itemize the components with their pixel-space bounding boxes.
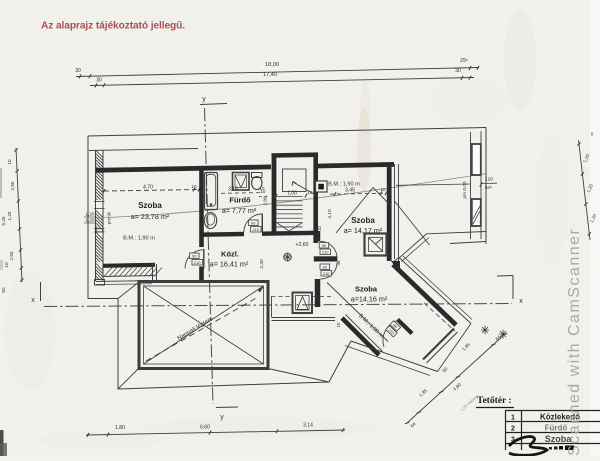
svg-text:Szoba: Szoba (138, 201, 162, 210)
svg-text:4,70: 4,70 (143, 185, 153, 191)
svg-text:10: 10 (261, 189, 266, 194)
svg-text:10: 10 (7, 159, 12, 165)
svg-text:pm 0,00: pm 0,00 (462, 181, 468, 199)
svg-text:210: 210 (322, 249, 329, 254)
svg-text:30: 30 (455, 68, 461, 74)
svg-text:30: 30 (75, 68, 81, 74)
svg-text:a= 16,41 m²: a= 16,41 m² (210, 260, 249, 269)
svg-text:10: 10 (4, 262, 9, 268)
svg-text:Szoba: Szoba (355, 285, 378, 294)
svg-text:1: 1 (511, 415, 515, 422)
svg-text:+2,60: +2,60 (295, 242, 308, 248)
svg-text:2,30: 2,30 (259, 259, 265, 269)
svg-text:5,20: 5,20 (1, 216, 6, 225)
svg-text:90: 90 (251, 220, 256, 225)
svg-text:10: 10 (308, 190, 313, 195)
svg-text:60: 60 (1, 287, 6, 293)
svg-text:Az alaprajz tájékoztató jelleg: Az alaprajz tájékoztató jellegű. (41, 21, 185, 32)
svg-text:17,40: 17,40 (263, 72, 277, 78)
svg-text:10: 10 (380, 187, 386, 192)
svg-text:90: 90 (192, 253, 197, 258)
svg-text:Közl.: Közl. (221, 250, 239, 259)
svg-text:1,80: 1,80 (115, 425, 125, 431)
svg-text:Fürdő: Fürdő (229, 196, 251, 205)
svg-text:x: x (31, 297, 35, 304)
svg-text:120: 120 (485, 177, 493, 183)
svg-text:a= 7,77 m²: a= 7,77 m² (222, 206, 257, 215)
svg-text:48: 48 (336, 260, 341, 265)
svg-text:6,60: 6,60 (200, 425, 210, 431)
svg-text:a= 23,78 m²: a= 23,78 m² (131, 212, 170, 221)
svg-text:2,80: 2,80 (263, 196, 268, 205)
svg-text:4,10: 4,10 (327, 209, 333, 219)
svg-text:18,00: 18,00 (265, 62, 279, 68)
svg-text:1,20: 1,20 (7, 211, 12, 220)
svg-text:210: 210 (323, 271, 330, 276)
svg-text:90: 90 (322, 243, 327, 248)
svg-text:210: 210 (252, 227, 259, 232)
svg-text:1,20: 1,20 (86, 218, 95, 223)
svg-text:x: x (519, 298, 523, 305)
svg-text:y: y (202, 96, 206, 103)
svg-text:a=14,16 m²: a=14,16 m² (351, 295, 388, 304)
svg-text:2,50: 2,50 (9, 251, 14, 260)
svg-text:29⁵: 29⁵ (460, 58, 468, 64)
svg-text:3,14: 3,14 (303, 423, 313, 429)
svg-text:30: 30 (96, 78, 102, 84)
svg-text:Scanned with CamScanner: Scanned with CamScanner (566, 228, 583, 456)
svg-text:10: 10 (336, 322, 341, 327)
svg-text:84⁵: 84⁵ (485, 185, 492, 191)
svg-text:B.M.: 1,90 m: B.M.: 1,90 m (123, 236, 155, 242)
svg-text:2: 2 (511, 426, 515, 433)
svg-text:210: 210 (194, 260, 201, 265)
svg-text:Fürdő: Fürdő (545, 424, 568, 433)
svg-text:3,18: 3,18 (228, 187, 238, 193)
svg-text:1,00: 1,00 (287, 191, 297, 197)
svg-text:3,45: 3,45 (345, 188, 355, 194)
svg-text:2,50: 2,50 (10, 181, 15, 190)
svg-text:Szoba: Szoba (351, 216, 375, 225)
svg-text:Tetőtér :: Tetőtér : (477, 396, 512, 406)
svg-text:10: 10 (317, 226, 322, 231)
svg-text:1,20: 1,20 (86, 212, 95, 217)
svg-text:90: 90 (322, 264, 327, 269)
svg-text:y: y (220, 414, 224, 421)
